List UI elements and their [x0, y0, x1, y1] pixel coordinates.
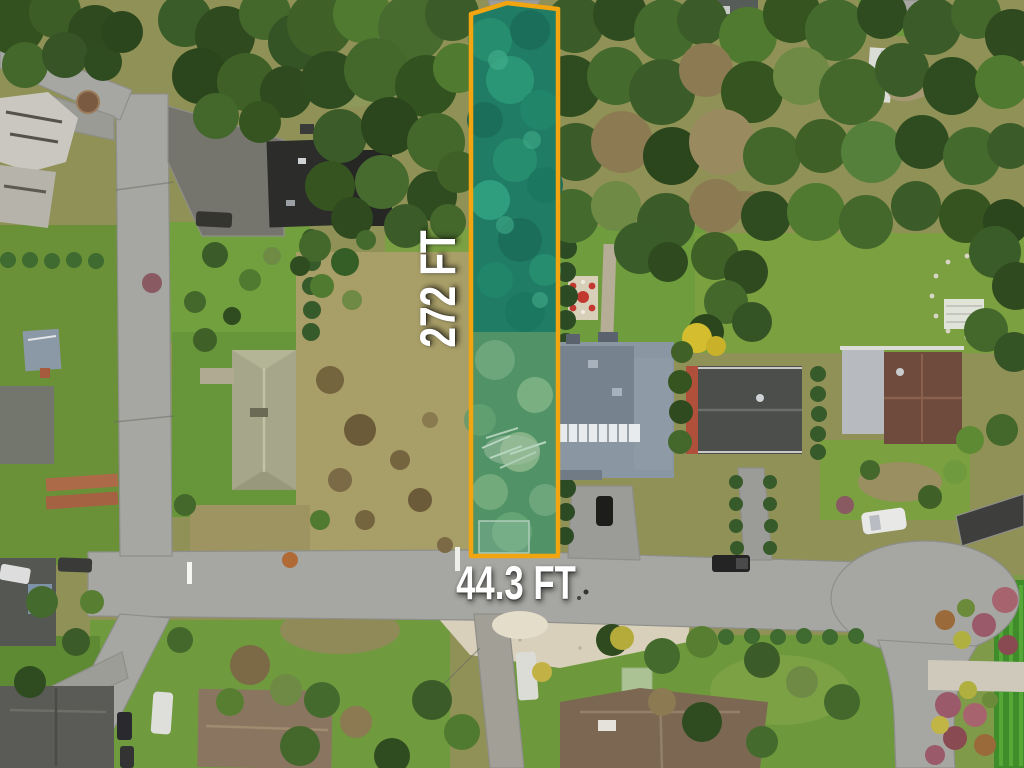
- car-black: [596, 496, 613, 526]
- road-marking: [187, 562, 192, 584]
- car-parked-2: [120, 746, 134, 768]
- gazebo-roof: [77, 91, 99, 113]
- lot-depth-label: 272 FT: [406, 215, 470, 363]
- lot-tint-overlay: [471, 3, 558, 556]
- van-white: [151, 691, 174, 734]
- house-modern-east: [556, 332, 674, 480]
- aerial-scene: [0, 0, 1024, 768]
- car-parked-1: [117, 712, 132, 740]
- car-dark-driveway: [196, 211, 233, 228]
- house-gray-hip: [686, 366, 802, 454]
- house-far-east: [840, 346, 964, 444]
- aerial-photo: 272 FT 44.3 FT: [0, 0, 1024, 768]
- property-lot: [464, 3, 563, 556]
- lot-width-label: 44.3 FT: [435, 553, 598, 613]
- car-dark-road: [58, 557, 92, 572]
- west-road: [116, 94, 172, 556]
